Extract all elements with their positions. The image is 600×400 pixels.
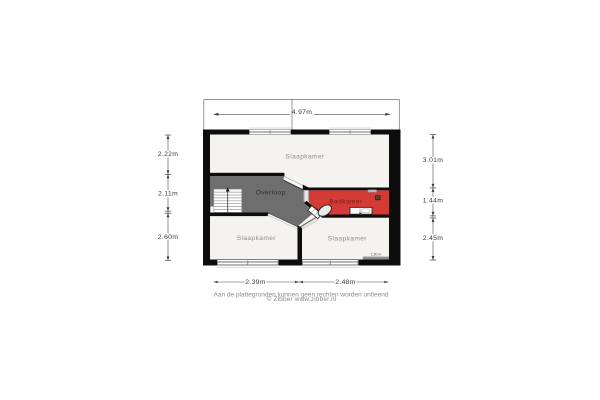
- svg-text:1.44m: 1.44m: [423, 197, 443, 204]
- svg-text:2.60m: 2.60m: [158, 234, 178, 241]
- svg-text:3.01m: 3.01m: [423, 157, 443, 164]
- svg-text:Slaapkamer: Slaapkamer: [237, 235, 277, 242]
- svg-text:2.48m: 2.48m: [335, 279, 355, 286]
- svg-text:© Zibber www.zibber.nl: © Zibber www.zibber.nl: [267, 295, 337, 303]
- svg-text:Slaapkamer: Slaapkamer: [328, 236, 368, 243]
- svg-text:2.39m: 2.39m: [245, 279, 265, 286]
- svg-text:2.45m: 2.45m: [423, 235, 443, 242]
- svg-text:Overloop: Overloop: [256, 189, 286, 196]
- svg-text:Badkamer: Badkamer: [329, 199, 363, 206]
- svg-text:2.11m: 2.11m: [158, 190, 178, 197]
- svg-text:4.97m: 4.97m: [292, 109, 312, 116]
- svg-text:1.50 m: 1.50 m: [371, 253, 382, 257]
- svg-text:2.22m: 2.22m: [158, 151, 178, 158]
- svg-text:Slaapkamer: Slaapkamer: [285, 153, 325, 160]
